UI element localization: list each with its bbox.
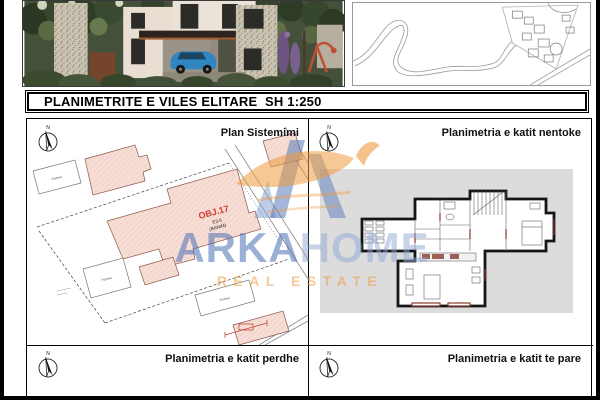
location-plan-drawing <box>353 3 590 85</box>
svg-text:N: N <box>46 351 50 357</box>
north-arrow-icon: N <box>35 123 61 155</box>
quadrant-label-plan-sistemimi: Plan Sistemimi <box>87 127 299 139</box>
site-plan-drawing: Pishina Pishina Pishina OBJ.17 E3-5 (BAN… <box>27 119 308 345</box>
plan-grid: Pishina Pishina Pishina OBJ.17 E3-5 (BAN… <box>26 118 592 400</box>
grid-horizontal-divider <box>27 345 593 346</box>
basement-plan-panel <box>320 169 573 313</box>
page-border-right <box>596 0 600 400</box>
quadrant-label-kati-nentoke: Planimetria e katit nentoke <box>327 127 581 139</box>
villa-photo-image <box>23 1 344 86</box>
quadrant-label-kati-perdhe: Planimetria e katit perdhe <box>87 353 299 365</box>
location-map-panel <box>352 2 591 86</box>
page-title: PLANIMETRITE E VILES ELITARE SH 1:250 <box>29 94 322 109</box>
north-arrow-icon: N <box>35 349 61 381</box>
building-footprints <box>85 133 303 345</box>
plan-sheet: PLANIMETRITE E VILES ELITARE SH 1:250 <box>0 0 600 400</box>
page-border-left <box>0 0 4 400</box>
title-bar: PLANIMETRITE E VILES ELITARE SH 1:250 <box>25 90 589 113</box>
svg-text:N: N <box>46 125 50 131</box>
site-note-lines <box>57 288 71 295</box>
title-frame: PLANIMETRITE E VILES ELITARE SH 1:250 <box>27 92 587 111</box>
grid-vertical-divider <box>308 119 309 400</box>
quadrant-label-kati-te-pare: Planimetria e katit te pare <box>327 353 581 365</box>
villa-photo-panel <box>22 0 345 87</box>
basement-floor-plan-drawing <box>320 169 573 313</box>
